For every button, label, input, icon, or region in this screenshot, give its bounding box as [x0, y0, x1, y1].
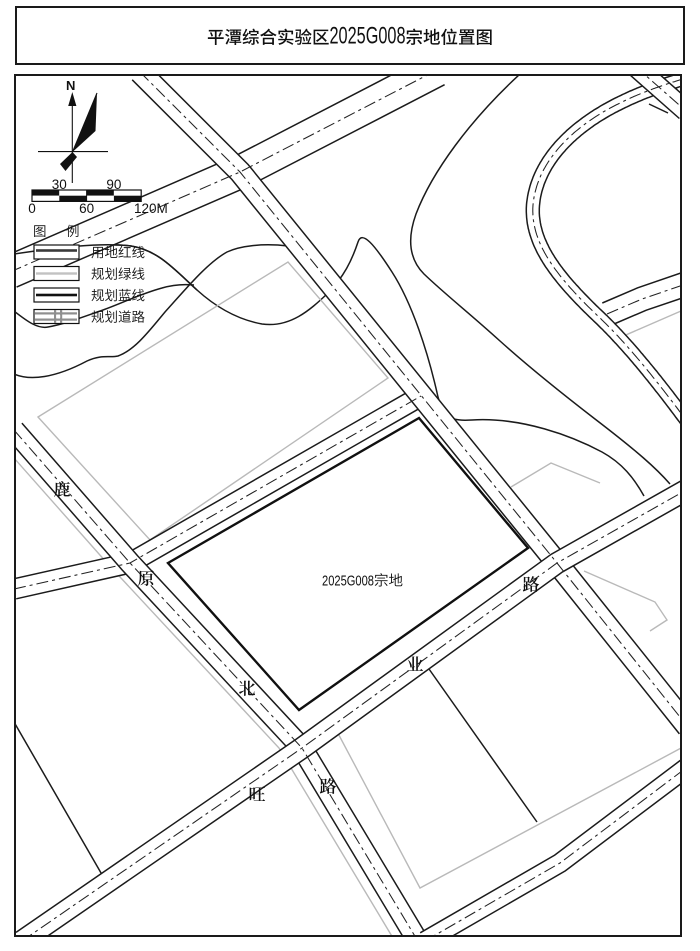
svg-text:90: 90: [106, 177, 121, 192]
svg-text:2025G008: 2025G008: [322, 574, 374, 590]
svg-text:N: N: [66, 78, 75, 93]
svg-text:2025G008: 2025G008: [330, 23, 406, 50]
svg-text:30: 30: [52, 177, 67, 192]
svg-text:120M: 120M: [134, 201, 168, 216]
svg-text:60: 60: [79, 201, 94, 216]
svg-text:0: 0: [28, 201, 36, 216]
